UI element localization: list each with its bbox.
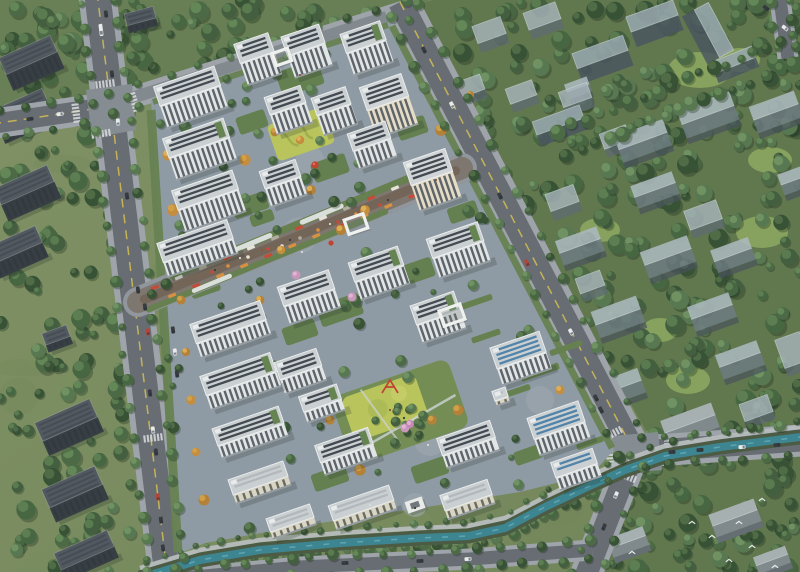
atmosphere xyxy=(0,0,800,572)
aerial-site-render xyxy=(0,0,800,572)
light-overlay xyxy=(0,0,800,572)
masterplan-rendering xyxy=(0,0,800,572)
